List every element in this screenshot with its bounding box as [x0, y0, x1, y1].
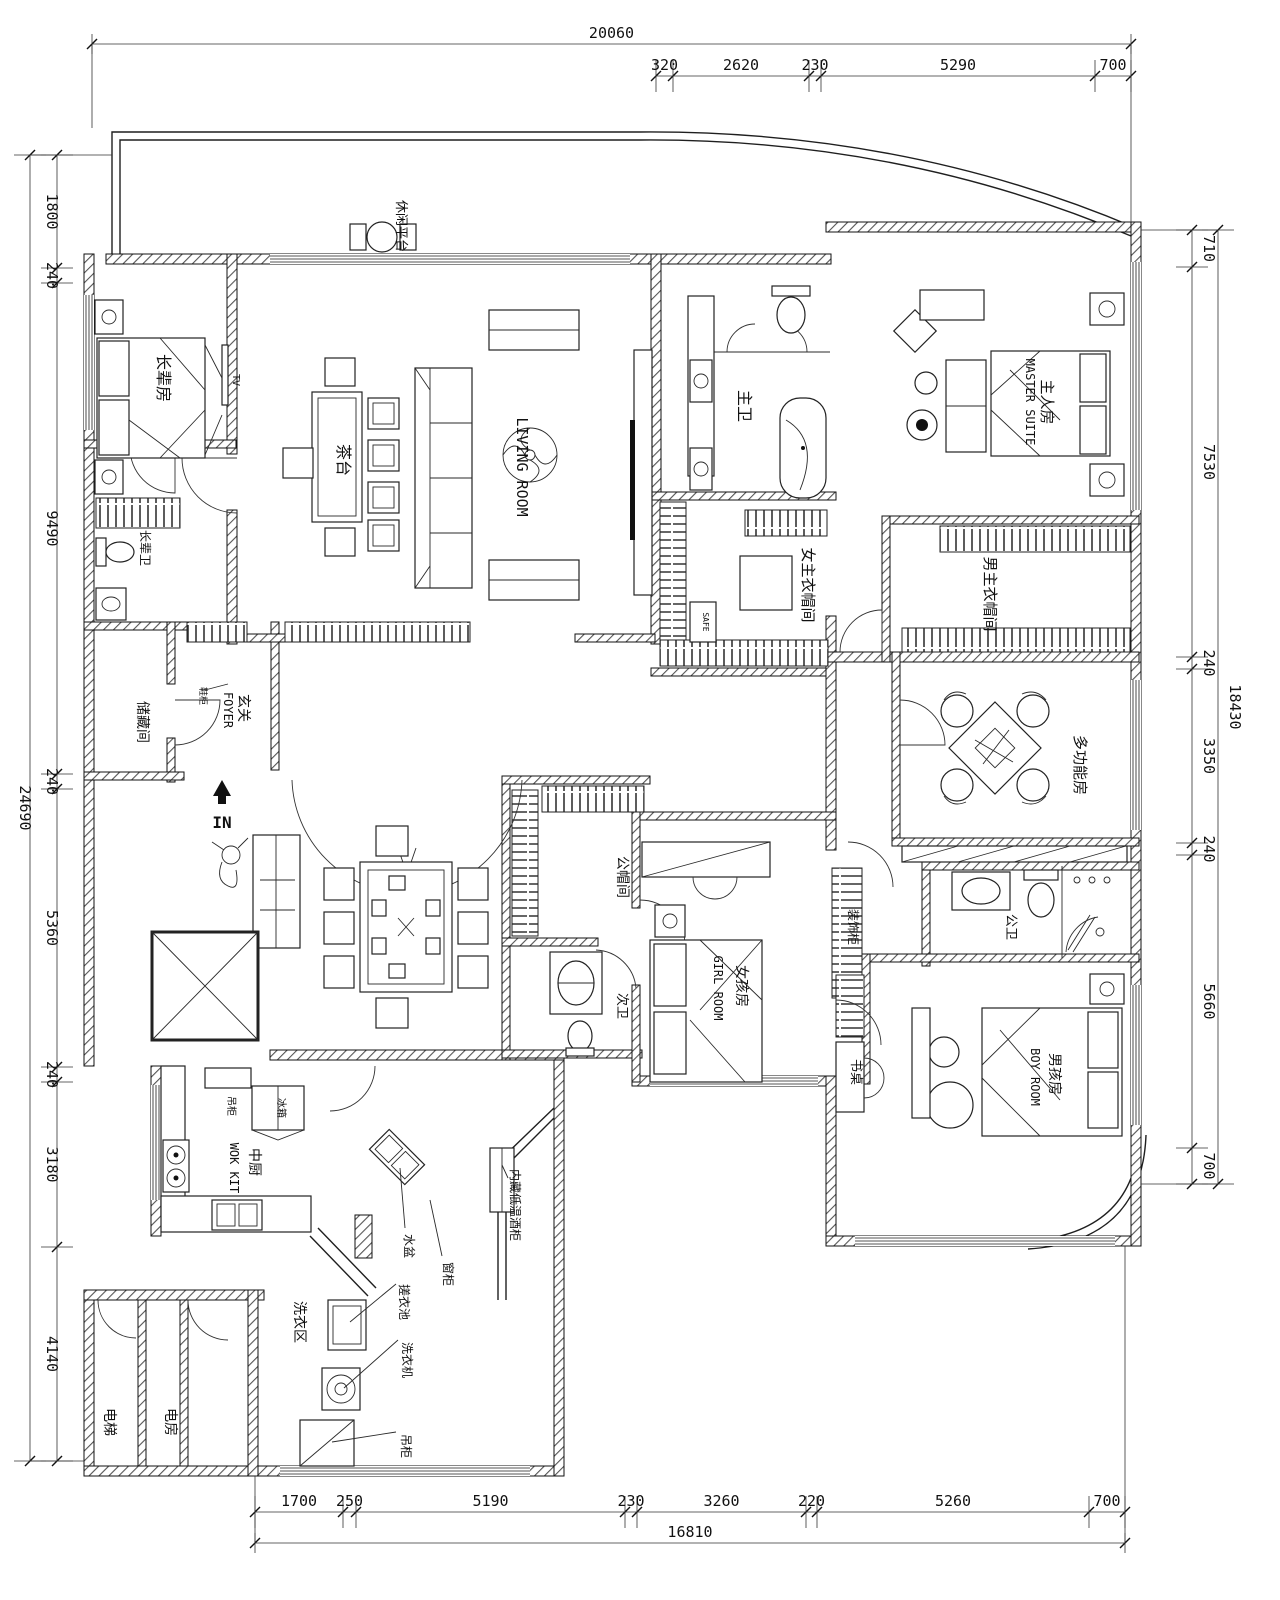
elder-bath-fixtures	[96, 538, 134, 620]
dim-bottom-overall-value-0: 16810	[667, 1523, 712, 1541]
label-fridge: 冰箱	[275, 1098, 288, 1118]
label-public-bath: 公卫	[1003, 914, 1018, 940]
window-living-top	[270, 254, 630, 264]
label-boy-zh: 男孩房	[1046, 1053, 1062, 1095]
label-laundry: 洗衣区	[291, 1301, 307, 1343]
dim-right-segments-value-4: 240	[1200, 835, 1218, 862]
girl-bath-fixtures	[550, 952, 602, 1056]
living-sofa	[415, 310, 579, 600]
dim-top-segments-value-4: 700	[1099, 56, 1126, 74]
label-deco-cabinet: 装饰柜	[846, 909, 860, 945]
dim-right-segments-value-3: 3350	[1200, 738, 1218, 774]
window-multi-right	[1131, 680, 1141, 830]
label-wine-cooler: 内藏低温酒柜	[508, 1169, 522, 1241]
label-boy-en: BOY ROOM	[1028, 1048, 1042, 1106]
dim-bottom-segments-value-0: 1700	[281, 1492, 317, 1510]
female-closet-island	[740, 556, 792, 610]
label-washer: 洗衣机	[400, 1342, 415, 1378]
dim-top-segments-value-1: 2620	[723, 56, 759, 74]
label-girl-en: GIRL ROOM	[711, 955, 725, 1020]
label-elder-room: 长辈房	[154, 354, 173, 402]
window-wing-bottom	[280, 1466, 530, 1476]
label-entry-in: IN	[212, 813, 231, 832]
hall-cabinet	[187, 622, 247, 642]
dim-bottom-segments-value-3: 230	[617, 1492, 644, 1510]
label-multi-room: 多功能房	[1071, 735, 1089, 795]
label-master-zh: 主人房	[1038, 379, 1056, 424]
floor-plan-page: 休闲平台 长辈房 TV 长辈卫 储藏间 鞋柜 玄关 FOYER 茶台 LIVIN…	[0, 0, 1280, 1600]
master-bed	[894, 290, 1124, 496]
female-closet-left	[660, 502, 686, 646]
male-closet-top	[940, 526, 1130, 552]
dim-right-segments-value-6: 700	[1200, 1152, 1218, 1179]
label-balcony: 休闲平台	[393, 200, 408, 252]
dim-left-segments-value-0: 1800	[43, 193, 61, 229]
window-boy-right	[1131, 985, 1141, 1125]
dim-right-segments-value-5: 5660	[1200, 983, 1218, 1019]
dim-bottom-segments-value-1: 250	[336, 1492, 363, 1510]
label-desk: 书桌	[848, 1059, 863, 1085]
dim-right-segments-value-1: 7530	[1200, 444, 1218, 480]
floor-plan-drawing: 休闲平台 长辈房 TV 长辈卫 储藏间 鞋柜 玄关 FOYER 茶台 LIVIN…	[0, 0, 1280, 1600]
label-wok-zh: 中厨	[246, 1148, 262, 1176]
dim-left-segments-value-6: 3180	[43, 1146, 61, 1182]
dim-left-segments-value-1: 240	[43, 262, 61, 289]
living-tv-wall	[630, 350, 652, 595]
label-male-closet: 男主衣帽间	[981, 556, 999, 631]
dining-hall-cabinet	[285, 622, 470, 642]
label-master-bath: 主卫	[735, 390, 754, 422]
label-hanging-cabinet-kitchen: 吊柜	[225, 1096, 238, 1116]
dim-top-segments-value-3: 5290	[940, 56, 976, 74]
female-closet-top	[745, 510, 827, 536]
dim-top-segments-value-0: 320	[651, 56, 678, 74]
entry-arrow	[213, 780, 231, 804]
label-tea-table: 茶台	[334, 444, 353, 476]
label-female-closet: 女主衣帽间	[799, 547, 817, 622]
dim-bottom-segments-value-2: 5190	[472, 1492, 508, 1510]
boy-room-furniture	[836, 974, 1124, 1136]
label-safe: SAFE	[701, 612, 710, 631]
label-window-cabinet: 窗柜	[441, 1262, 455, 1286]
label-foyer-en: FOYER	[221, 692, 235, 729]
label-elec-room: 电房	[162, 1408, 178, 1436]
elevator-shaft	[152, 932, 258, 1040]
elder-wardrobe	[96, 498, 180, 528]
male-closet-bottom	[902, 628, 1130, 652]
label-cloak-room: 公帽间	[614, 856, 630, 898]
dim-right-segments-value-2: 240	[1200, 649, 1218, 676]
master-bath-fixtures	[688, 286, 826, 498]
female-closet-bottom	[660, 640, 828, 666]
label-master-en: MASTER SUITE	[1023, 359, 1037, 446]
window-kitchen-left	[151, 1085, 161, 1200]
window-master-right	[1131, 262, 1141, 510]
label-tv: TV	[230, 374, 241, 386]
dim-right-overall-value-0: 18430	[1226, 684, 1244, 729]
room-labels: 休闲平台 长辈房 TV 长辈卫 储藏间 鞋柜 玄关 FOYER 茶台 LIVIN…	[101, 200, 1089, 1458]
label-hanging-cabinet-laundry: 吊柜	[399, 1434, 413, 1458]
dim-left-segments-value-3: 240	[43, 768, 61, 795]
doors	[98, 324, 1098, 1340]
label-storage: 储藏间	[134, 701, 150, 743]
label-wash-pool: 搓衣池	[397, 1284, 412, 1320]
furniture	[95, 286, 1124, 1466]
multi-room-table	[941, 692, 1049, 804]
label-wok-en: WOK KIT	[227, 1143, 241, 1194]
master-double-door	[840, 610, 882, 652]
corridor-wardrobe	[902, 846, 1127, 862]
dim-left-segments-value-2: 9490	[43, 510, 61, 546]
cloak-top	[542, 786, 644, 812]
public-bath-fixtures	[952, 866, 1110, 958]
girl-room-furniture	[642, 842, 770, 1082]
dim-left-segments-value-5: 240	[43, 1061, 61, 1088]
dim-bottom-segments-value-7: 700	[1093, 1492, 1120, 1510]
dim-bottom-segments-value-4: 3260	[703, 1492, 739, 1510]
boy-bookshelf	[836, 975, 864, 1037]
label-basin: 水盆	[402, 1234, 416, 1258]
cloak-left	[512, 790, 538, 936]
dim-left-segments-value-7: 4140	[43, 1336, 61, 1372]
dim-bottom-segments-value-6: 5260	[935, 1492, 971, 1510]
dim-left-segments-value-4: 5360	[43, 910, 61, 946]
label-girl-bath: 次卫	[614, 993, 630, 1019]
label-elder-bath: 长辈卫	[138, 530, 152, 566]
window-elder-left	[84, 295, 94, 430]
label-shoe-cabinet: 鞋柜	[197, 687, 209, 705]
label-living-en: LIVING ROOM	[513, 417, 531, 516]
dim-top-overall-value-0: 20060	[589, 24, 634, 42]
label-elevator: 电梯	[101, 1408, 117, 1436]
dining-table	[324, 826, 488, 1028]
label-foyer-zh: 玄关	[235, 694, 252, 722]
label-girl-zh: 女孩房	[733, 965, 750, 1007]
dim-bottom-segments-value-5: 220	[798, 1492, 825, 1510]
dim-top-segments-value-2: 230	[801, 56, 828, 74]
dim-right-segments-value-0: 710	[1200, 235, 1218, 262]
dim-left-overall-value-0: 24690	[16, 785, 34, 830]
window-boy-bottom	[855, 1236, 1115, 1246]
